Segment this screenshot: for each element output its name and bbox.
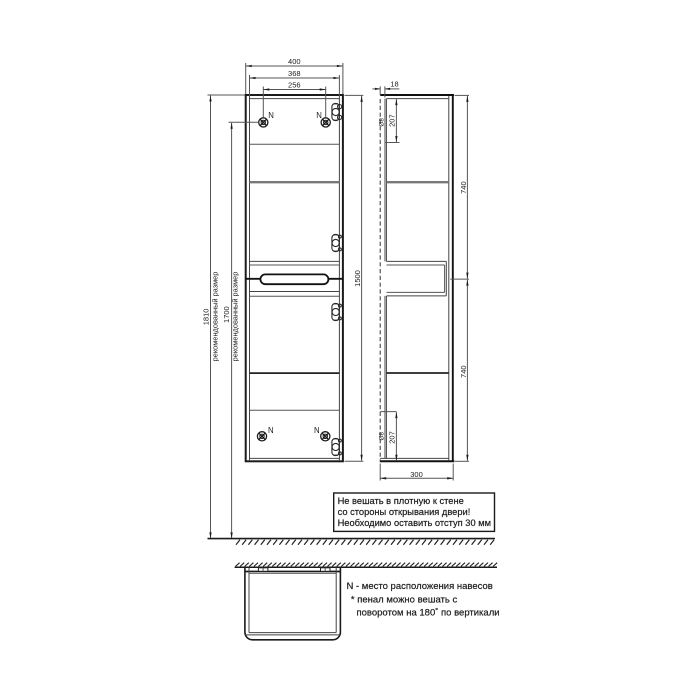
svg-text:18: 18 xyxy=(390,80,398,89)
svg-text:Ø8: Ø8 xyxy=(379,431,386,440)
svg-text:поворотом на 180˚ по вертикали: поворотом на 180˚ по вертикали xyxy=(357,607,500,618)
svg-text:рекомендованный размер: рекомендованный размер xyxy=(230,272,239,362)
svg-text:Не вешать в плотную к стене: Не вешать в плотную к стене xyxy=(338,496,464,506)
svg-text:740: 740 xyxy=(459,365,468,378)
svg-text:1500: 1500 xyxy=(353,270,362,287)
svg-text:N: N xyxy=(268,111,274,120)
svg-text:740: 740 xyxy=(459,181,468,194)
svg-text:N: N xyxy=(268,426,274,435)
svg-text:со стороны открывания двери!: со стороны открывания двери! xyxy=(338,507,471,517)
svg-text:1810: 1810 xyxy=(202,309,211,326)
svg-text:N - место расположения навесов: N - место расположения навесов xyxy=(347,581,493,592)
svg-text:256: 256 xyxy=(288,80,301,89)
svg-text:* пенал можно вешать с: * пенал можно вешать с xyxy=(351,595,458,606)
svg-text:207: 207 xyxy=(388,431,397,444)
svg-text:300: 300 xyxy=(410,470,423,479)
svg-text:рекомендованный размер: рекомендованный размер xyxy=(211,272,220,362)
svg-text:N: N xyxy=(316,111,322,120)
svg-text:368: 368 xyxy=(288,69,301,78)
svg-text:400: 400 xyxy=(288,57,301,66)
svg-text:207: 207 xyxy=(388,114,397,127)
svg-text:Необходимо оставить отступ 30: Необходимо оставить отступ 30 мм xyxy=(338,518,491,528)
svg-text:N: N xyxy=(314,426,320,435)
svg-text:Ø8: Ø8 xyxy=(379,118,386,127)
